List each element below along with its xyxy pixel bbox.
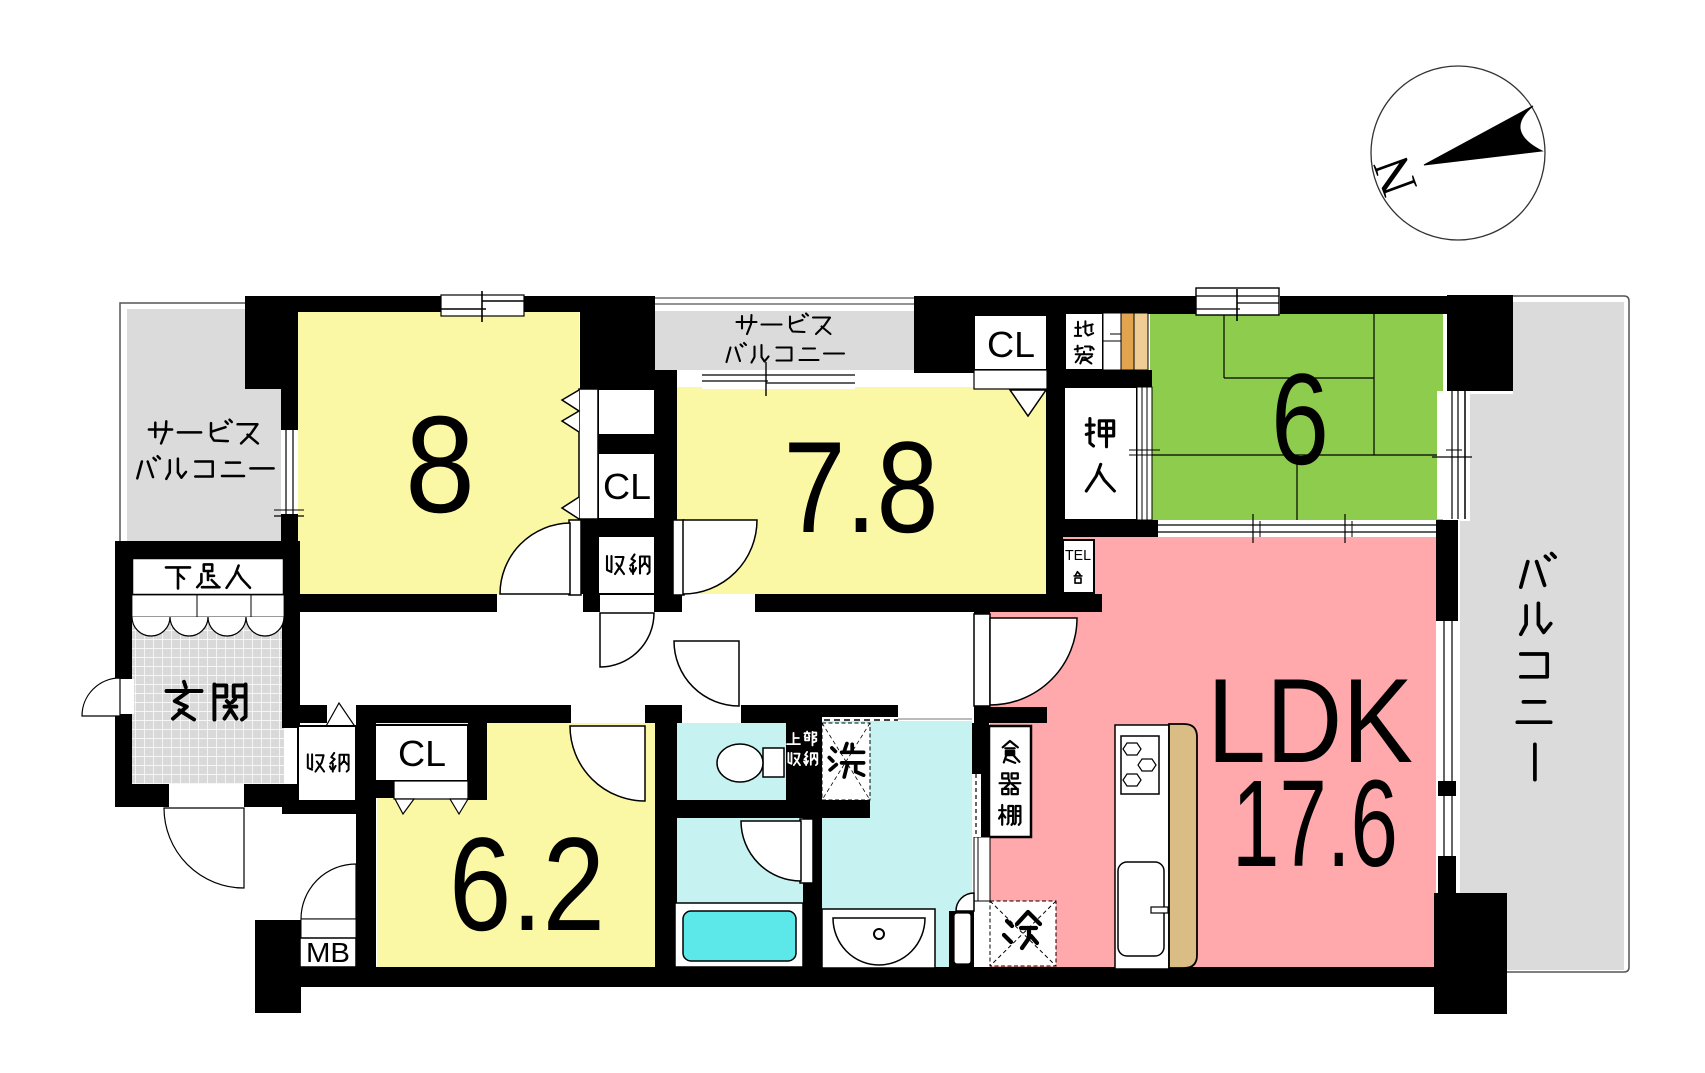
svg-text:8: 8 <box>405 388 475 542</box>
svg-text:6: 6 <box>1271 346 1329 492</box>
svg-text:TEL: TEL <box>1065 547 1091 564</box>
svg-text:MB: MB <box>306 937 350 968</box>
svg-text:N: N <box>1363 148 1429 203</box>
svg-text:17.6: 17.6 <box>1232 756 1398 893</box>
svg-text:6.2: 6.2 <box>449 811 605 959</box>
svg-text:CL: CL <box>603 466 651 507</box>
svg-text:7.8: 7.8 <box>784 414 939 560</box>
svg-text:PS: PS <box>789 781 812 800</box>
svg-text:CL: CL <box>987 324 1035 365</box>
svg-text:CL: CL <box>398 733 446 774</box>
